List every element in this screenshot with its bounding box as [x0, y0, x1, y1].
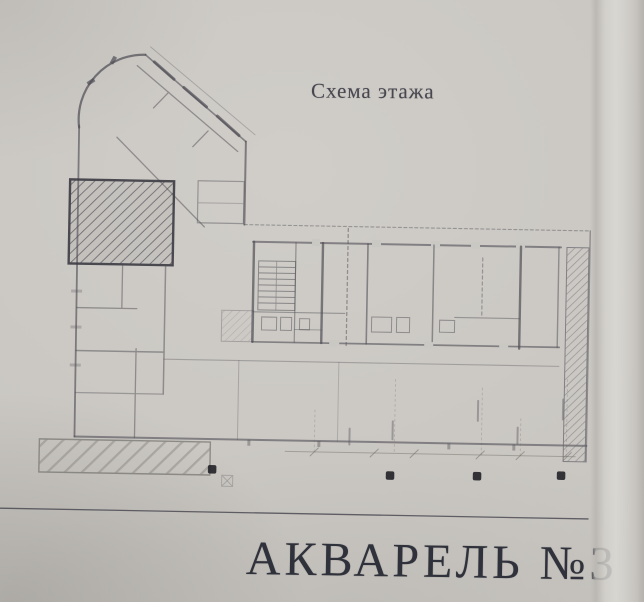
- protrusion-room: [197, 181, 244, 224]
- sheet-rule: [0, 508, 588, 519]
- fixtures: [261, 315, 454, 334]
- residence-name: АКВАРЕЛЬ №3: [246, 531, 618, 592]
- floor-plan-photo: Схема этажа АКВАРЕЛЬ №3: [0, 0, 644, 602]
- small-cross-mark: [222, 475, 233, 486]
- floor-plan: [0, 44, 597, 519]
- highlighted-room: [69, 179, 175, 265]
- left-zone-walls: [68, 263, 165, 438]
- dimension-line: [285, 374, 576, 460]
- page-edge-shadow: [590, 0, 644, 602]
- marker-dots: [208, 465, 566, 483]
- plan-title: Схема этажа: [311, 79, 435, 105]
